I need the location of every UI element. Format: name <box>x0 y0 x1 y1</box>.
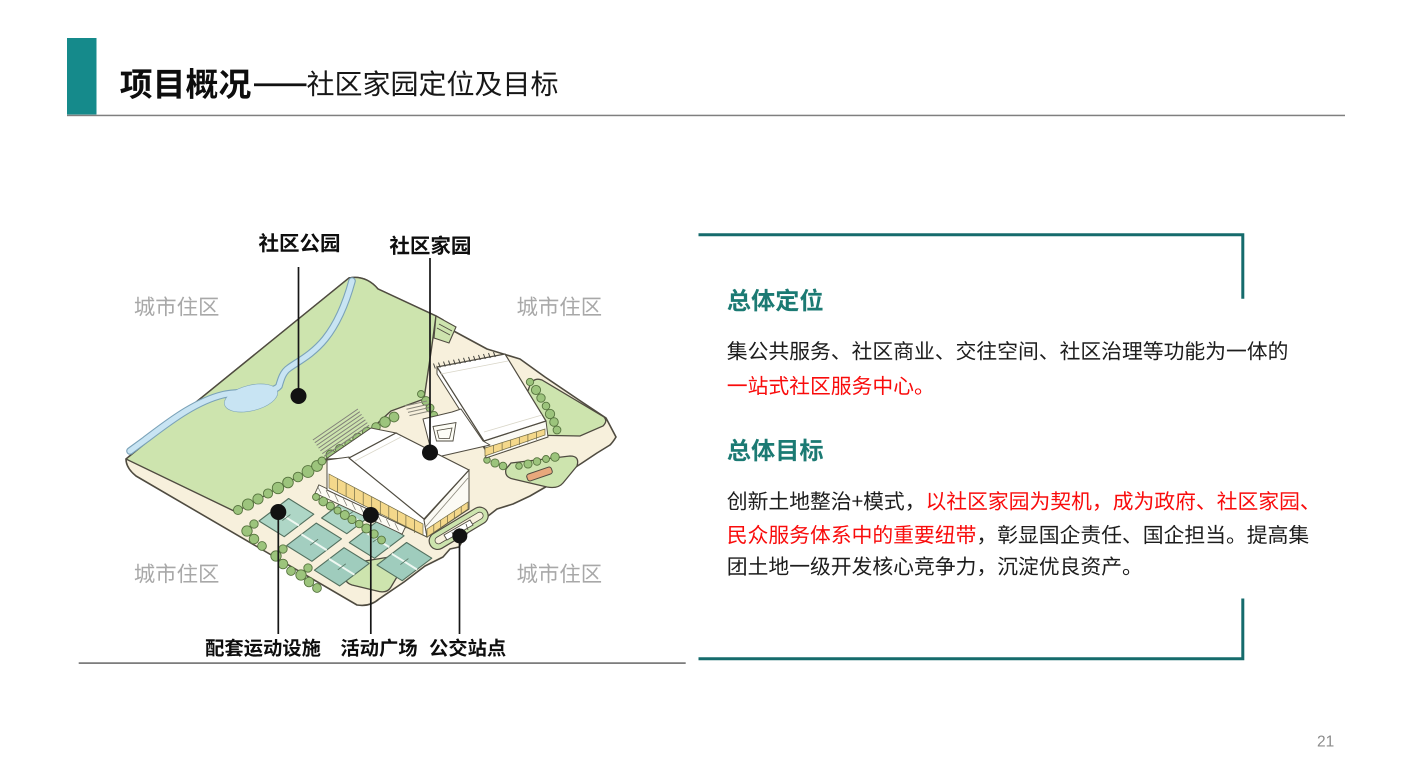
svg-text:21: 21 <box>1317 734 1334 751</box>
